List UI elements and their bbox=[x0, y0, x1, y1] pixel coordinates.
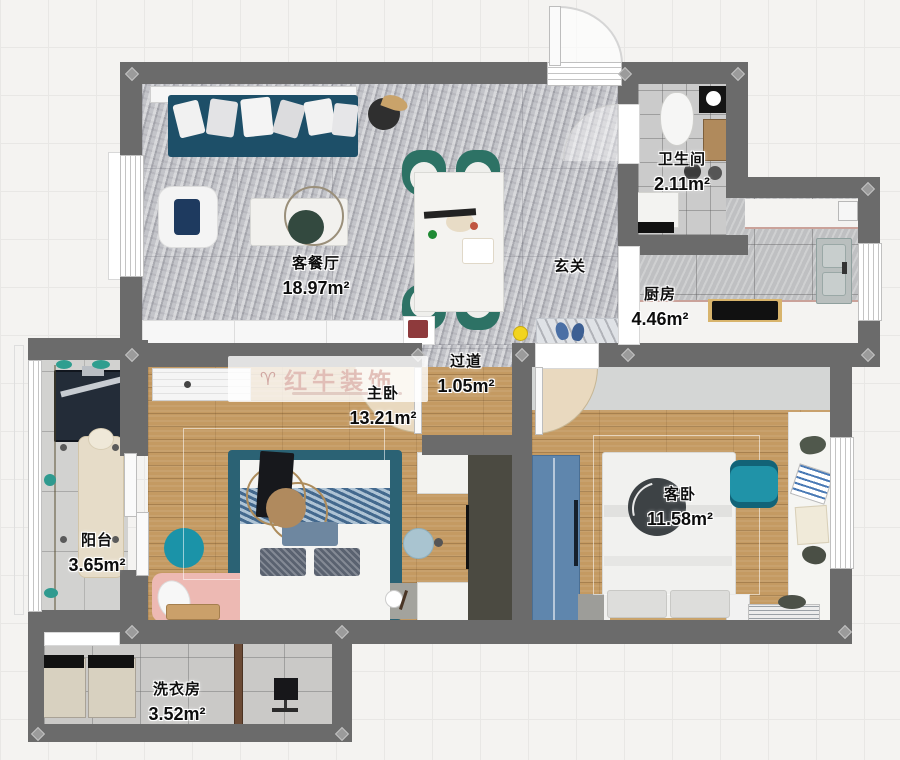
drying-pole bbox=[234, 638, 243, 728]
washer-top bbox=[88, 655, 134, 668]
entry-door-arc bbox=[559, 6, 623, 64]
wall bbox=[120, 620, 852, 644]
kitchen-appliance bbox=[838, 201, 858, 221]
brand-watermark: ♈ 红牛装饰 bbox=[228, 356, 428, 402]
living-window bbox=[120, 155, 144, 277]
washing-machine-door bbox=[706, 91, 721, 106]
bull-logo-icon: ♈ bbox=[260, 369, 276, 390]
bed-pillow bbox=[260, 548, 306, 576]
wall bbox=[120, 62, 547, 84]
balcony-plant bbox=[92, 360, 110, 369]
yoga-runner bbox=[78, 436, 124, 578]
stool-dot bbox=[434, 538, 443, 547]
kitchen-doorway bbox=[618, 246, 640, 345]
wardrobe-blue-seam bbox=[553, 458, 555, 632]
bath-stool bbox=[684, 163, 701, 180]
dining-tableware bbox=[470, 222, 478, 230]
sofa-pillow bbox=[331, 103, 358, 137]
ac-unit-dot bbox=[184, 381, 191, 388]
dining-tableware bbox=[428, 230, 437, 239]
sofa-pillow bbox=[206, 98, 239, 138]
balcony-sliding-door-panel bbox=[136, 512, 149, 576]
fan-head bbox=[274, 678, 298, 700]
kitchen-faucet bbox=[842, 262, 847, 274]
office-chair bbox=[730, 460, 778, 508]
entry-door-leaf bbox=[549, 6, 561, 66]
bath-cabinet bbox=[703, 119, 728, 161]
wardrobe-blue bbox=[532, 455, 580, 637]
guest-window bbox=[830, 437, 854, 569]
sofa-pillow bbox=[240, 97, 274, 138]
wardrobe-handle bbox=[574, 500, 578, 566]
brand-name: 红牛装饰 bbox=[284, 362, 396, 396]
radiator-plant bbox=[778, 595, 806, 609]
bed-pillow bbox=[314, 548, 360, 576]
green-pouf bbox=[288, 210, 324, 244]
nightstand bbox=[578, 594, 604, 622]
guest-door-leaf bbox=[535, 367, 543, 435]
round-stool bbox=[403, 528, 434, 559]
runner-pillow bbox=[88, 428, 114, 450]
framed-item-art bbox=[408, 320, 428, 338]
guest-bed-fold bbox=[604, 556, 732, 566]
wall bbox=[28, 724, 352, 742]
dining-tableware bbox=[462, 238, 494, 264]
bed-pillow bbox=[670, 590, 730, 618]
wall bbox=[422, 435, 512, 455]
tan-cushion bbox=[266, 488, 306, 528]
laundry-threshold bbox=[44, 632, 120, 646]
wardrobe-module bbox=[417, 582, 472, 622]
wall bbox=[726, 177, 880, 198]
shower-fixture bbox=[708, 166, 722, 180]
floor-dot bbox=[60, 444, 67, 451]
armchair-cushion bbox=[174, 199, 200, 235]
wardrobe-handle bbox=[466, 505, 469, 569]
brand-tagline-line bbox=[292, 392, 402, 395]
balcony-plant bbox=[56, 360, 72, 369]
bed-pillow bbox=[607, 590, 667, 618]
wall bbox=[512, 367, 532, 620]
balcony-plant bbox=[44, 474, 56, 486]
wall bbox=[332, 628, 352, 742]
bench bbox=[166, 604, 220, 620]
kitchen-window bbox=[858, 243, 882, 321]
fan-base bbox=[272, 708, 298, 712]
balcony-plant bbox=[44, 588, 58, 598]
notebook bbox=[795, 505, 830, 545]
guest-door-opening bbox=[535, 343, 599, 369]
balcony-sliding-door-panel bbox=[124, 453, 137, 517]
balcony-outer-line bbox=[14, 345, 24, 615]
floor-dot bbox=[112, 536, 119, 543]
bath-vanity-counter bbox=[636, 222, 674, 233]
floorplan-canvas: ♈ 红牛装饰 客餐厅 18.97m² 玄关 卫生间 2.11m² 厨房 4.46… bbox=[0, 0, 900, 760]
washer-top bbox=[40, 655, 84, 668]
balcony-glass-wall bbox=[28, 360, 42, 612]
wardrobe-dark-side bbox=[468, 450, 512, 620]
kitchen-sink-basin bbox=[822, 272, 846, 296]
ceiling-light-dot bbox=[513, 326, 528, 341]
cooktop bbox=[712, 301, 778, 320]
bathroom-door-opening bbox=[618, 104, 640, 164]
toilet bbox=[660, 92, 694, 146]
vine-line bbox=[54, 365, 56, 610]
wardrobe-module bbox=[417, 452, 470, 494]
floor-dot bbox=[112, 444, 119, 451]
floor-dot bbox=[60, 536, 67, 543]
